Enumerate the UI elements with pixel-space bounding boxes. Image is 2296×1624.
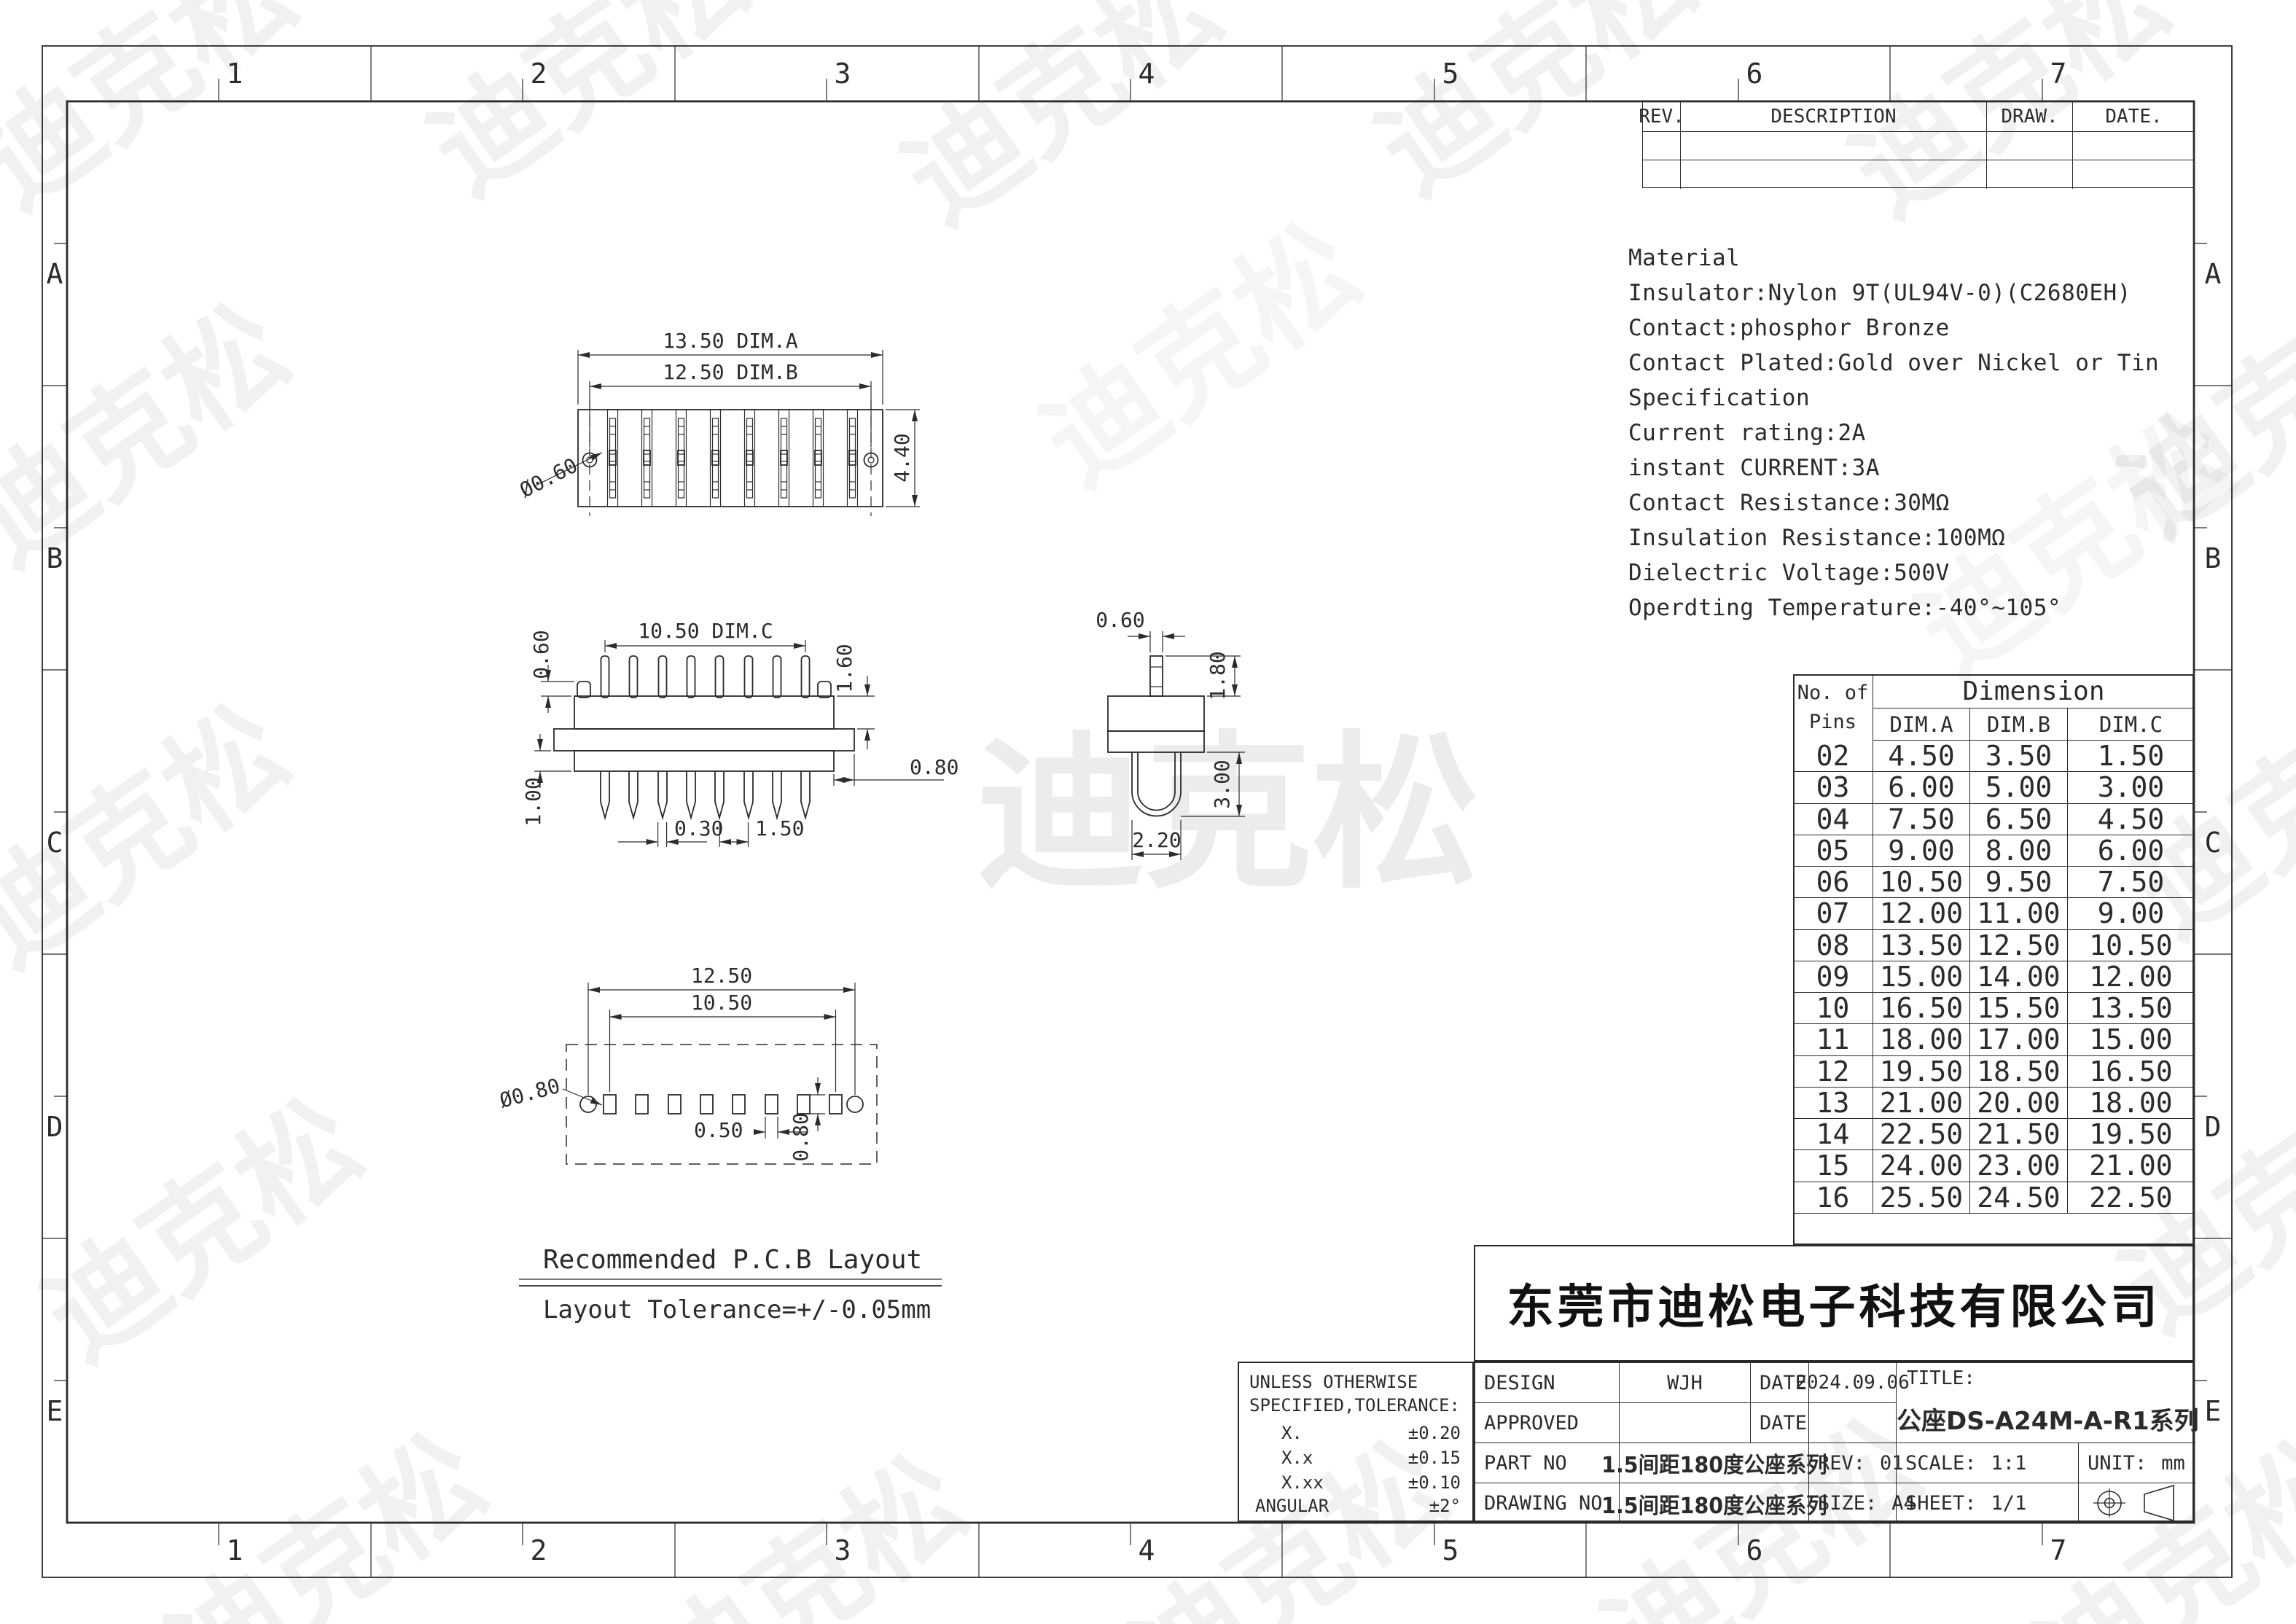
rev-header: DATE. [2073,102,2195,132]
pcb-caption-tolerance: Layout Tolerance=+/-0.05mm [543,1295,931,1324]
dim-table-cell: 14 [1793,1119,1873,1150]
pcb-inner-label: 10.50 [691,991,752,1015]
dim-a-label: 13.50 DIM.A [663,329,798,353]
dim-table-cell: 10 [1793,993,1873,1024]
dim-table-cell: 4.50 [2068,804,2194,835]
rev-cell [1681,160,1987,189]
dim-table-cell: 10.50 [1873,867,1970,898]
drawing-no-value: 1.5间距180度公座系列 [1601,1488,1827,1520]
date-value-1: 2024.09.06 [1809,1363,1897,1403]
top-view: 13.50 DIM.A 12.50 DIM.B 4.40 Ø0.60 [516,329,920,516]
zone-label: D [47,1111,63,1143]
dim-table-cell: 15.50 [1970,993,2068,1024]
dim-table-cell: 04 [1793,804,1873,835]
title-value: 公座DS-A24M-A-R1系列 [1897,1401,2195,1437]
dim-table-cell: 22.50 [1873,1119,1970,1150]
design-value: WJH [1620,1363,1751,1403]
dim-table-cell: 18.00 [2068,1088,2194,1119]
dim-table-cell: 11.00 [1970,898,2068,929]
dim-table-cell: 02 [1793,741,1873,772]
material-line: Dielectric Voltage:500V [1628,555,2159,590]
company-box: 东莞市迪松电子科技有限公司 [1474,1245,2194,1362]
dim-table-cell: 19.50 [2068,1119,2194,1150]
zone-label: 4 [1139,1534,1155,1566]
zone-label: 2 [531,58,547,90]
dim-table-cell: 22.50 [2068,1182,2194,1214]
zone-label: 4 [1139,58,1155,90]
zone-label: 1 [227,58,243,90]
hole-label: Ø0.60 [516,453,582,503]
third-angle-projection-icon [2079,1483,2188,1523]
zone-label: 7 [2050,1534,2067,1566]
drawing-no-label: DRAWING NO [1475,1483,1620,1523]
rev-cell [2073,132,2195,160]
dim-table-cell: 13 [1793,1088,1873,1119]
body-left-label: 1.00 [521,777,545,826]
dim-table-cell: 12.00 [2068,961,2194,993]
body-right-label: 1.60 [832,644,856,692]
zone-label: A [47,258,63,290]
dim-table-cell: 15.00 [1873,961,1970,993]
dim-b-label: 12.50 DIM.B [663,360,797,384]
side-view: 0.60 1.80 3.00 2.20 [1096,608,1245,860]
zone-label: B [2205,542,2222,574]
dim-table-cell: 18.00 [1873,1024,1970,1055]
dim-table-cell: 08 [1793,930,1873,961]
part-no-value: 1.5间距180度公座系列 [1601,1447,1827,1479]
dim-table-cell: 8.00 [1970,835,2068,867]
dim-table-cell: 3.00 [2068,772,2194,803]
dim-table-cell: 9.50 [1970,867,2068,898]
pcb-caption-title: Recommended P.C.B Layout [543,1245,922,1275]
dim-table-cell: 6.00 [1873,772,1970,803]
rev-cell [1681,132,1987,160]
dim-table-cell: 15 [1793,1150,1873,1182]
zone-label: 3 [835,58,851,90]
zone-label: 6 [1746,58,1763,90]
dim-table-cell: 03 [1793,772,1873,803]
dim-table-cell: 19.50 [1873,1056,1970,1088]
zone-label: 2 [531,1534,547,1566]
tol-label: X. [1281,1423,1303,1443]
pad-height-label: 0.80 [789,1112,813,1161]
dim-table-cell: 18.50 [1970,1056,2068,1088]
zone-label: 3 [835,1534,851,1566]
unit-label: UNIT: [2088,1452,2147,1475]
material-line: instant CURRENT:3A [1628,450,2159,485]
rev-header: REV. [1643,102,1681,132]
dim-table-cell: 6.00 [2068,835,2194,867]
material-line: Operdting Temperature:-40°~105° [1628,590,2159,625]
step-label: 0.80 [910,755,958,779]
tolerance-block: UNLESS OTHERWISE SPECIFIED,TOLERANCE: X.… [1238,1362,1474,1522]
dim-table-cell: 16.50 [1873,993,1970,1024]
size-label: SIZE: [1818,1492,1877,1515]
zone-label: 6 [1746,1534,1763,1566]
dimension-table-header: No. of Pins Dimension DIM.A DIM.B DIM.C [1793,674,2194,741]
zone-label: E [47,1395,63,1427]
tol-value: ±0.15 [1408,1448,1461,1468]
dim-a-header: DIM.A [1873,708,1970,741]
dim-table-cell: 21.00 [1873,1088,1970,1119]
dim-table-cell: 23.00 [1970,1150,2068,1182]
dim-table-cell: 06 [1793,867,1873,898]
dim-table-cell: 6.50 [1970,804,2068,835]
dim-table-cell: 3.50 [1970,741,2068,772]
dim-table-cell: 24.00 [1873,1150,1970,1182]
title-block: DESIGN WJH DATE 2024.09.06 TITLE: 公座DS-A… [1474,1362,2194,1522]
dim-table-cell: 24.50 [1970,1182,2068,1214]
pins-header-line1: No. of [1797,679,1869,707]
rev-cell [1643,160,1681,189]
height-label: 4.40 [890,433,914,482]
dim-table-cell: 11 [1793,1024,1873,1055]
dim-c-header: DIM.C [2068,708,2194,741]
tol-value: ±2° [1429,1496,1461,1516]
material-line: Material [1628,241,2159,276]
dim-table-cell: 12.00 [1873,898,1970,929]
material-line: Current rating:2A [1628,415,2159,450]
dim-table-cell: 4.50 [1873,741,1970,772]
dim-table-cell: 21.50 [1970,1119,2068,1150]
dim-table-cell: 17.00 [1970,1024,2068,1055]
material-spec-block: Material Insulator:Nylon 9T(UL94V-0)(C26… [1628,241,2159,625]
scale-value: 1:1 [1991,1452,2027,1475]
side-pin-height-label: 1.80 [1206,651,1230,700]
tol-label: ANGULAR [1255,1496,1329,1516]
sheet-label: SHEET: [1905,1492,1977,1515]
tol-label: X.x [1281,1448,1313,1468]
dim-table-cell: 9.00 [1873,835,1970,867]
dim-table-cell: 7.50 [1873,804,1970,835]
tolerance-line1: UNLESS OTHERWISE [1249,1372,1418,1392]
pcb-hole-label: Ø0.80 [497,1074,563,1113]
dim-table-cell: 14.00 [1970,961,2068,993]
dim-table-cell: 05 [1793,835,1873,867]
sheet-value: 1/1 [1991,1492,2027,1515]
tol-value: ±0.10 [1408,1472,1461,1493]
front-view: 10.50 DIM.C 0.60 1.60 1.00 0.80 [521,619,958,847]
zone-label: E [2205,1395,2222,1427]
dim-table-cell: 16 [1793,1182,1873,1214]
approved-value [1620,1403,1751,1443]
material-line: Contact Plated:Gold over Nickel or Tin [1628,346,2159,380]
zone-label: B [47,542,63,574]
dimension-table-rows: 024.503.501.50036.005.003.00047.506.504.… [1793,741,2194,1245]
dim-c-label: 10.50 DIM.C [638,619,773,643]
zone-label: C [2205,827,2222,859]
company-name: 东莞市迪松电子科技有限公司 [1507,1270,2161,1337]
rev-cell [2073,160,2195,189]
dim-table-cell: 20.00 [1970,1088,2068,1119]
material-line: Insulator:Nylon 9T(UL94V-0)(C2680EH) [1628,276,2159,311]
zone-label: 1 [227,1534,243,1566]
dim-table-cell: 12 [1793,1056,1873,1088]
revision-table: REV. DESCRIPTION DRAW. DATE. [1642,101,2194,188]
date-label-2: DATE [1751,1403,1809,1443]
engineering-drawing-page: 迪克松 迪克松 迪克松 迪克松 迪克松 迪克松 迪克松 迪克松 迪克松 迪克松 … [0,0,2296,1624]
dim-table-cell: 1.50 [2068,741,2194,772]
date-value-2 [1809,1403,1897,1443]
stub-dim-label: 0.60 [529,630,553,679]
pcb-layout-view: 12.50 10.50 Ø0.80 0.50 0.80 [497,964,877,1164]
material-line: Contact:phosphor Bronze [1628,311,2159,346]
bend-width-label: 2.20 [1132,828,1181,852]
dim-table-cell: 21.00 [2068,1150,2194,1182]
pad-width-label: 0.50 [694,1118,743,1142]
title-label: TITLE: [1907,1367,1975,1389]
dim-table-cell: 12.50 [1970,930,2068,961]
rev-header: DRAW. [1987,102,2073,132]
dimension-group-header: Dimension [1873,674,2194,708]
part-no-label: PART NO [1475,1443,1620,1483]
bend-height-label: 3.00 [1210,760,1234,808]
approved-label: APPROVED [1475,1403,1620,1443]
scale-label: SCALE: [1905,1452,1977,1475]
pin-width-label: 0.30 [674,816,723,840]
rev-cell [1643,132,1681,160]
tol-label: X.xx [1281,1472,1324,1493]
rev-cell [1987,160,2073,189]
dim-table-cell: 09 [1793,961,1873,993]
dim-table-cell: 13.50 [2068,993,2194,1024]
dim-table-cell: 13.50 [1873,930,1970,961]
pcb-overall-label: 12.50 [691,964,752,988]
dim-table-cell: 25.50 [1873,1182,1970,1214]
pitch-label: 1.50 [755,816,804,840]
dim-table-cell: 15.00 [2068,1024,2194,1055]
material-line: Specification [1628,380,2159,415]
dim-table-cell: 7.50 [2068,867,2194,898]
material-line: Insulation Resistance:100MΩ [1628,520,2159,555]
material-line: Contact Resistance:30MΩ [1628,485,2159,520]
dim-table-cell: 16.50 [2068,1056,2194,1088]
rev-label: REV: [1818,1452,1865,1475]
zone-label: D [2205,1111,2222,1143]
zone-label: A [2205,258,2222,290]
rev-header: DESCRIPTION [1681,102,1987,132]
side-pin-width-label: 0.60 [1096,608,1144,632]
dim-table-cell: 10.50 [2068,930,2194,961]
dim-table-cell: 07 [1793,898,1873,929]
dim-table-cell: 9.00 [2068,898,2194,929]
pcb-captions: Recommended P.C.B Layout Layout Toleranc… [519,1245,942,1324]
zone-label: C [47,827,63,859]
unit-value: mm [2161,1452,2185,1475]
tolerance-line2: SPECIFIED,TOLERANCE: [1249,1395,1460,1416]
zone-label: 7 [2050,58,2067,90]
design-label: DESIGN [1475,1363,1620,1403]
dim-b-header: DIM.B [1970,708,2068,741]
zone-label: 5 [1442,58,1459,90]
rev-cell [1987,132,2073,160]
tol-value: ±0.20 [1408,1423,1461,1443]
zone-label: 5 [1442,1534,1459,1566]
dim-table-cell: 5.00 [1970,772,2068,803]
